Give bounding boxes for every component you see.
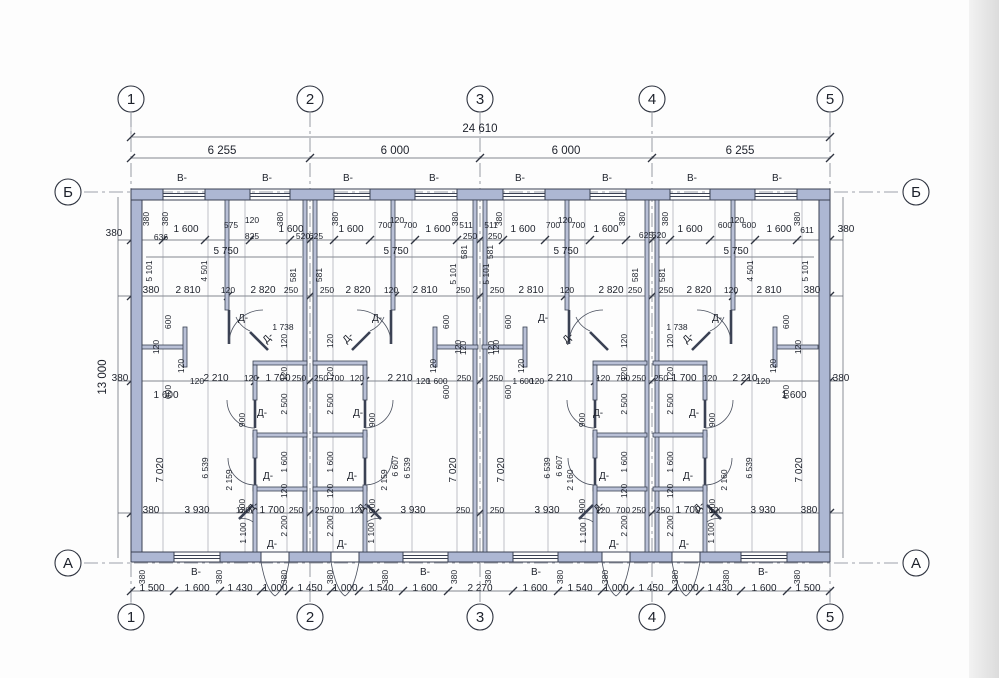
dimension-text: 6 000 — [381, 145, 410, 157]
door-mark: Д- — [238, 313, 248, 324]
window — [741, 552, 787, 562]
dimension-text: 1 600 — [665, 451, 675, 473]
window-mark: В- — [758, 567, 768, 578]
dimension-text: 600 — [441, 385, 451, 399]
dimension-text: 5 750 — [213, 246, 238, 257]
dimension-text: 6 539 — [542, 457, 552, 479]
dimension-text: 2 820 — [598, 285, 623, 296]
dimension-text: 1 600 — [325, 451, 335, 473]
dimension-text: 250 — [320, 285, 334, 295]
dimension-text: 120 — [245, 215, 259, 225]
dimension-text: 5 750 — [723, 246, 748, 257]
axis-label: А — [63, 555, 73, 572]
wall-pier — [710, 189, 755, 200]
top-wall-piers — [131, 189, 830, 200]
dimension-text: 1 500 — [139, 583, 164, 594]
dimension-text: 380 — [483, 570, 493, 584]
dimension-text: 3 930 — [184, 505, 209, 516]
dimension-text: 380 — [106, 228, 123, 239]
dimension-text: 2 210 — [203, 373, 228, 384]
axis-grid-lines — [84, 113, 900, 604]
axis-label: 2 — [306, 91, 314, 108]
dimension-text: 250 — [490, 285, 504, 295]
dimension-text: 120 — [176, 359, 186, 373]
dimension-text: 120 — [325, 334, 335, 348]
dimension-text: 600 — [503, 315, 513, 329]
dimension-text: 2 820 — [345, 285, 370, 296]
door-mark: Д- — [599, 471, 609, 482]
dimension-text: 250 — [457, 373, 471, 383]
door-mark: Д- — [679, 539, 689, 550]
dimension-text: 900 — [237, 413, 247, 427]
dimension-text: 4 501 — [745, 260, 755, 282]
dimension-text: 1 600 — [751, 583, 776, 594]
dimension-text: 700 — [616, 505, 630, 515]
dimension-text: 250 — [456, 505, 470, 515]
axis-label: 4 — [648, 609, 656, 626]
dimension-text: 581 — [657, 268, 667, 282]
door-mark: Д- — [263, 471, 273, 482]
axis-label: 4 — [648, 91, 656, 108]
dimension-text: 4 501 — [199, 260, 209, 282]
dimension-text: 5 101 — [144, 260, 154, 282]
dimension-text: 1 100 — [578, 522, 588, 544]
dimension-text: 1 700 — [259, 505, 284, 516]
dimension-text: 250 — [490, 505, 504, 515]
dimension-text: 1 100 — [238, 522, 248, 544]
dimension-text: 1 450 — [297, 583, 322, 594]
dimension-text: 2 210 — [732, 373, 757, 384]
window — [590, 189, 626, 200]
dimension-text: 600 — [503, 385, 513, 399]
dimension-text: 250 — [628, 285, 642, 295]
dimension-text: 380 — [137, 570, 147, 584]
dimension-text: 1 600 — [512, 376, 534, 386]
dimension-text: 6 255 — [726, 145, 755, 157]
door-mark: Д- — [267, 539, 277, 550]
dimension-text: 2 500 — [325, 393, 335, 415]
axis-label: А — [911, 555, 921, 572]
door-mark: Д- — [683, 471, 693, 482]
dimension-text: 250 — [659, 285, 673, 295]
dimension-text: 1 600 — [619, 451, 629, 473]
dimension-text: 581 — [314, 268, 324, 282]
dimension-text: 6 539 — [744, 457, 754, 479]
left-wall — [131, 200, 142, 552]
axis-label: 5 — [826, 91, 834, 108]
dimension-text: 825 — [245, 231, 259, 241]
dimension-text: 380 — [838, 224, 855, 235]
dimension-text: 250 — [488, 231, 502, 241]
door-mark: Д- — [609, 539, 619, 550]
dimension-text: 250 — [463, 231, 477, 241]
dimension-text: 380 — [660, 212, 670, 226]
door-mark: Д- — [372, 313, 382, 324]
dimension-text: 2 159 — [379, 469, 389, 491]
dimension-text: 380 — [494, 212, 504, 226]
axis-label: Б — [911, 184, 921, 201]
window-mark: В- — [191, 567, 201, 578]
dimension-text: 380 — [279, 570, 289, 584]
dimension-text: 380 — [450, 212, 460, 226]
dimension-text: 1 600 — [522, 583, 547, 594]
dimension-text: 1 600 — [173, 224, 198, 235]
dimension-text: 380 — [330, 212, 340, 226]
right-wall — [819, 200, 830, 552]
dimension-text: 120 — [596, 373, 610, 383]
dimension-text: 1 600 — [184, 583, 209, 594]
dimension-text: 120 — [236, 505, 250, 515]
dimension-text: 2 500 — [279, 393, 289, 415]
dimension-text: 5 101 — [481, 263, 491, 285]
window — [174, 552, 220, 562]
dimension-text: 120 — [665, 367, 675, 381]
dimension-text: 120 — [279, 334, 289, 348]
dimension-text: 1 700 — [675, 505, 700, 516]
wall-pier — [289, 552, 331, 562]
wall-pier — [131, 189, 163, 200]
dimension-text: 6 607 — [554, 455, 564, 477]
dimension-text: 380 — [804, 285, 821, 296]
dimension-text: 120 — [703, 373, 717, 383]
window-mark: В- — [420, 567, 430, 578]
dimension-text: 120 — [619, 334, 629, 348]
dimension-text: 1 738 — [666, 322, 688, 332]
dimension-text: 380 — [600, 570, 610, 584]
window — [163, 189, 205, 200]
dimension-text: 2 200 — [325, 515, 335, 537]
dimension-text: 120 — [190, 376, 204, 386]
dimension-text: 1 430 — [227, 583, 252, 594]
wall-pier — [797, 189, 830, 200]
wall-pier — [558, 552, 602, 562]
door-mark: Д- — [347, 471, 357, 482]
dimension-text: 380 — [792, 570, 802, 584]
dimension-text: 1 600 — [425, 224, 450, 235]
dimension-text: 1 600 — [781, 390, 806, 401]
dimension-text: 1 600 — [426, 376, 448, 386]
dimension-text: 2 820 — [686, 285, 711, 296]
dimension-text: 380 — [141, 212, 151, 226]
dimension-text: 2 200 — [279, 515, 289, 537]
dimension-text: 1 600 — [153, 390, 178, 401]
dimension-text: 120 — [279, 367, 289, 381]
door-mark: Д- — [257, 408, 267, 419]
dimension-text: 250 — [289, 505, 303, 515]
dimension-text: 1 540 — [567, 583, 592, 594]
dimension-text: 581 — [288, 268, 298, 282]
dimension-text: 120 — [619, 367, 629, 381]
window — [503, 189, 545, 200]
dimension-text: 120 — [428, 359, 438, 373]
dimension-text: 120 — [756, 376, 770, 386]
dimension-text: 2 160 — [719, 469, 729, 491]
dimension-text: 700 — [571, 220, 585, 230]
dimension-text: 7 020 — [155, 457, 166, 482]
dimension-text: 2 200 — [665, 515, 675, 537]
dimension-lines — [118, 113, 843, 604]
dimension-text: 600 — [163, 315, 173, 329]
dimension-text: 1 430 — [707, 583, 732, 594]
axis-label: 1 — [127, 91, 135, 108]
axis-label: 3 — [476, 91, 484, 108]
dimension-text: 581 — [485, 245, 495, 259]
dimension-text: 900 — [577, 413, 587, 427]
dimension-text: 120 — [350, 505, 364, 515]
dimension-text: 600 — [742, 220, 756, 230]
dimension-text: 581 — [459, 245, 469, 259]
dimension-text: 120 — [724, 285, 738, 295]
window-mark: В- — [687, 173, 697, 184]
dimension-text: 120 — [516, 359, 526, 373]
dimension-text: 120 — [665, 334, 675, 348]
dimension-text: 1 600 — [766, 224, 791, 235]
window — [403, 552, 448, 562]
dimension-text: 120 — [560, 285, 574, 295]
wall-pier — [626, 189, 670, 200]
wall-pier — [290, 189, 334, 200]
door-jamb — [602, 552, 630, 562]
dimension-text: 24 610 — [462, 123, 497, 135]
dimension-text: 120 — [665, 484, 675, 498]
dimension-text: 120 — [486, 341, 496, 355]
window-mark: В- — [531, 567, 541, 578]
wall-pier — [457, 189, 503, 200]
dimension-text: 6 000 — [552, 145, 581, 157]
bottom-wall-piers — [131, 552, 830, 562]
door-jamb — [261, 552, 289, 562]
dimension-text: 611 — [800, 225, 814, 235]
dimension-text: 120 — [768, 359, 778, 373]
door-jamb — [331, 552, 359, 562]
dimension-text: 5 101 — [448, 263, 458, 285]
dimension-text: 380 — [275, 212, 285, 226]
door-mark: Д- — [681, 331, 696, 346]
wall-pier — [448, 552, 513, 562]
dimension-text: 250 — [632, 373, 646, 383]
dimension-text: 120 — [221, 285, 235, 295]
door-mark: Д- — [593, 408, 603, 419]
dimension-text: 380 — [721, 570, 731, 584]
dimension-text: 380 — [380, 570, 390, 584]
dimension-text: 700 — [403, 220, 417, 230]
dimension-text: 6 539 — [200, 457, 210, 479]
dimension-text: 511 — [459, 220, 473, 230]
dimension-text: 1 100 — [706, 522, 716, 544]
dimension-text: 120 — [279, 484, 289, 498]
wall-pier — [630, 552, 672, 562]
window-mark: В- — [602, 173, 612, 184]
axis-label: Б — [63, 184, 73, 201]
axis-label: 1 — [127, 609, 135, 626]
dimension-text: 120 — [151, 340, 161, 354]
dimension-text: 1 450 — [638, 583, 663, 594]
dimension-text: 700 — [330, 505, 344, 515]
dimension-text: 380 — [112, 373, 129, 384]
dimension-text: 380 — [449, 570, 459, 584]
dimension-text: 6 539 — [402, 457, 412, 479]
dimension-text: 250 — [315, 505, 329, 515]
dimension-text: 520 — [652, 230, 666, 240]
window-mark: В- — [343, 173, 353, 184]
axis-label: 5 — [826, 609, 834, 626]
dimension-text: 2 160 — [565, 469, 575, 491]
dimension-text: 120 — [709, 505, 723, 515]
window — [334, 189, 370, 200]
dimension-text: 625 — [309, 231, 323, 241]
door-mark: Д- — [538, 313, 548, 324]
dimension-text: 2 159 — [224, 469, 234, 491]
dimension-text: 900 — [577, 499, 587, 513]
dimension-text: 1 000 — [673, 583, 698, 594]
wall-pier — [787, 552, 830, 562]
window — [250, 189, 290, 200]
window — [415, 189, 457, 200]
wall-pier — [131, 552, 174, 562]
dimension-text: 120 — [350, 373, 364, 383]
dimension-text: 380 — [160, 212, 170, 226]
dimension-text: 380 — [617, 212, 627, 226]
window-mark: В- — [177, 173, 187, 184]
door-mark: Д- — [561, 331, 576, 346]
dimension-text: 120 — [325, 367, 335, 381]
dimension-text: 250 — [632, 505, 646, 515]
dimension-text: 600 — [781, 315, 791, 329]
dimension-text: 1 000 — [603, 583, 628, 594]
dimension-ticks — [127, 133, 834, 595]
dimension-text: 900 — [367, 413, 377, 427]
dimension-text: 7 020 — [448, 457, 459, 482]
floor-plan-page: 1122334455ББАА 24 6106 2556 0006 0006 25… — [0, 0, 999, 678]
dimension-text: 380 — [792, 212, 802, 226]
dimension-text: 2 820 — [250, 285, 275, 296]
dimension-text: 250 — [656, 505, 670, 515]
dimension-text: 380 — [143, 285, 160, 296]
dimension-text: 1 600 — [593, 224, 618, 235]
dimension-text: 1 738 — [272, 322, 294, 332]
dimension-text: 2 500 — [665, 393, 675, 415]
dimension-text: 3 930 — [750, 505, 775, 516]
dimension-text: 1 700 — [671, 373, 696, 384]
dimension-text: 120 — [244, 373, 258, 383]
dimension-text: 1 600 — [510, 224, 535, 235]
dimension-text: 1 540 — [368, 583, 393, 594]
dimension-text: 380 — [833, 373, 850, 384]
dimension-text: 120 — [458, 341, 468, 355]
dimension-text: 380 — [670, 570, 680, 584]
dimension-text: 1 600 — [677, 224, 702, 235]
dimension-text: 575 — [224, 220, 238, 230]
dimension-text: 380 — [214, 570, 224, 584]
dimension-text: 1 600 — [412, 583, 437, 594]
dimension-text: 120 — [325, 484, 335, 498]
door-jamb — [672, 552, 700, 562]
dimension-text: 1 000 — [332, 583, 357, 594]
dimension-text: 3 930 — [534, 505, 559, 516]
window-mark: В- — [772, 173, 782, 184]
dimension-text: 250 — [292, 373, 306, 383]
door-mark: Д- — [353, 408, 363, 419]
dimension-text: 2 810 — [175, 285, 200, 296]
floor-plan-drawing: 1122334455ББАА 24 6106 2556 0006 0006 25… — [0, 0, 999, 678]
axis-label: 2 — [306, 609, 314, 626]
dimension-text: 120 — [384, 285, 398, 295]
dimension-text: 5 750 — [383, 246, 408, 257]
dimension-text: 3 930 — [400, 505, 425, 516]
wall-pier — [370, 189, 415, 200]
wall-pier — [545, 189, 590, 200]
dimension-text: 250 — [456, 285, 470, 295]
dimension-text: 2 210 — [547, 373, 572, 384]
door-mark: Д- — [341, 331, 356, 346]
dimension-text: 120 — [619, 484, 629, 498]
page-edge-shadow — [969, 0, 999, 678]
dimension-text: 120 — [596, 505, 610, 515]
wall-pier — [700, 552, 741, 562]
window-mark: В- — [429, 173, 439, 184]
dimension-text: 1 100 — [366, 522, 376, 544]
dimension-text: 1 000 — [262, 583, 287, 594]
door-mark: Д- — [689, 408, 699, 419]
dimension-text: 6 607 — [390, 455, 400, 477]
window — [513, 552, 558, 562]
dimension-text: 2 270 — [467, 583, 492, 594]
wall-pier — [359, 552, 403, 562]
dimension-text: 2 210 — [387, 373, 412, 384]
dimension-text: 581 — [630, 268, 640, 282]
door-mark: Д- — [337, 539, 347, 550]
dimension-text: 13 000 — [97, 359, 109, 394]
dimension-text: 5 750 — [553, 246, 578, 257]
door-mark: Д- — [712, 313, 722, 324]
window — [670, 189, 710, 200]
dimension-text: 2 810 — [412, 285, 437, 296]
dimension-text: 636 — [154, 232, 168, 242]
dimension-text: 600 — [441, 315, 451, 329]
dimension-text: 5 101 — [800, 260, 810, 282]
dimension-text: 380 — [555, 570, 565, 584]
dimension-text: 380 — [325, 570, 335, 584]
dimension-text: 1 500 — [795, 583, 820, 594]
dimension-text: 380 — [143, 505, 160, 516]
dimension-text: 1 600 — [279, 451, 289, 473]
dimension-text: 250 — [489, 373, 503, 383]
window-mark: В- — [262, 173, 272, 184]
dimension-text: 7 020 — [794, 457, 805, 482]
dimension-text: 2 500 — [619, 393, 629, 415]
dimension-text: 7 020 — [496, 457, 507, 482]
dimension-text: 6 255 — [208, 145, 237, 157]
dimension-text: 2 810 — [756, 285, 781, 296]
wall-pier — [220, 552, 261, 562]
dimension-text: 250 — [284, 285, 298, 295]
dimension-text: 900 — [707, 413, 717, 427]
dimension-text: 1 600 — [338, 224, 363, 235]
wall-pier — [205, 189, 250, 200]
dimension-text: 2 810 — [518, 285, 543, 296]
dimension-text: 120 — [793, 340, 803, 354]
axis-label: 3 — [476, 609, 484, 626]
dimension-text: 380 — [801, 505, 818, 516]
window — [755, 189, 797, 200]
window-mark: В- — [515, 173, 525, 184]
dimension-text: 2 200 — [619, 515, 629, 537]
